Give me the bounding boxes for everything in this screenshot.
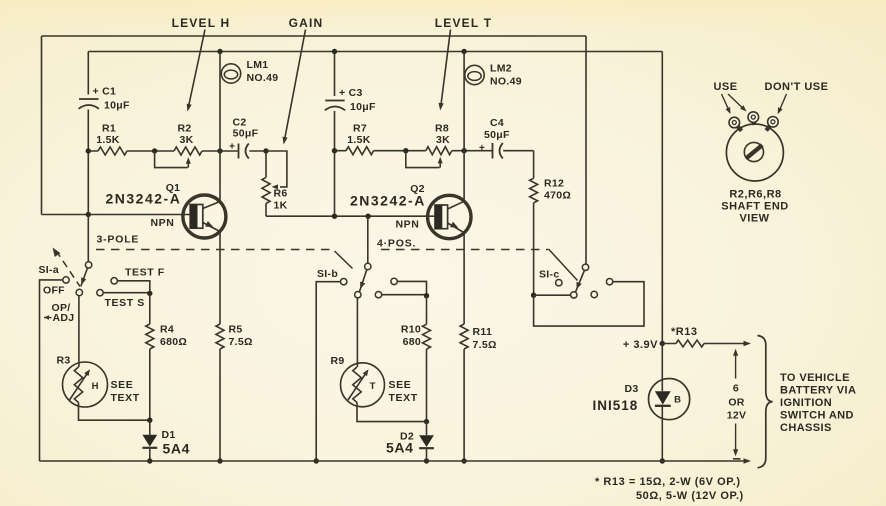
svg-text:10μF: 10μF — [350, 101, 376, 113]
svg-text:680Ω: 680Ω — [160, 336, 187, 348]
svg-text:1.5K: 1.5K — [96, 134, 119, 146]
svg-text:50μF: 50μF — [233, 128, 259, 140]
svg-text:LEVEL H: LEVEL H — [172, 16, 231, 30]
svg-text:LEVEL T: LEVEL T — [435, 16, 493, 30]
svg-text:+ C1: + C1 — [93, 86, 117, 98]
svg-text:2N3242-A: 2N3242-A — [350, 193, 426, 209]
svg-text:TEST S: TEST S — [105, 297, 145, 309]
svg-text:CHASSIS: CHASSIS — [780, 422, 832, 434]
svg-text:50Ω, 5-W (12V OP.): 50Ω, 5-W (12V OP.) — [636, 490, 744, 502]
svg-text:R9: R9 — [331, 355, 345, 367]
svg-text:BATTERY VIA: BATTERY VIA — [780, 385, 856, 397]
svg-text:H: H — [92, 381, 99, 392]
svg-text:USE: USE — [713, 81, 737, 93]
svg-text:R4: R4 — [160, 324, 174, 336]
svg-text:+: + — [479, 143, 485, 154]
svg-text:INI518: INI518 — [593, 398, 639, 413]
svg-text:50μF: 50μF — [484, 129, 510, 141]
svg-text:TEXT: TEXT — [111, 392, 140, 404]
svg-text:D3: D3 — [625, 383, 639, 395]
svg-text:4·POS.: 4·POS. — [377, 238, 416, 250]
svg-text:TO VEHICLE: TO VEHICLE — [780, 372, 850, 384]
svg-text:SEE: SEE — [111, 379, 134, 391]
svg-text:5A4: 5A4 — [163, 441, 190, 457]
svg-text:+ 3.9V: + 3.9V — [623, 339, 658, 351]
svg-text:* R13 = 15Ω, 2-W (6V OP.): * R13 = 15Ω, 2-W (6V OP.) — [595, 476, 741, 488]
svg-text:NPN: NPN — [396, 219, 420, 231]
svg-text:7.5Ω: 7.5Ω — [229, 336, 253, 348]
svg-text:R12: R12 — [544, 178, 564, 190]
svg-text:SI-a: SI-a — [39, 264, 59, 276]
svg-text:DON'T USE: DON'T USE — [765, 81, 829, 93]
svg-text:C4: C4 — [490, 117, 504, 129]
svg-text:3K: 3K — [436, 134, 450, 146]
svg-text:3K: 3K — [179, 134, 193, 146]
svg-text:TEXT: TEXT — [389, 392, 418, 404]
svg-text:10μF: 10μF — [104, 100, 130, 112]
svg-text:R7: R7 — [353, 123, 367, 135]
svg-text:T: T — [370, 381, 376, 392]
svg-text:R5: R5 — [229, 324, 243, 336]
svg-text:680: 680 — [403, 336, 421, 348]
svg-text:2N3242-A: 2N3242-A — [106, 191, 182, 207]
svg-text:NO.49: NO.49 — [247, 72, 279, 84]
svg-text:LM2: LM2 — [490, 63, 512, 75]
svg-text:TEST F: TEST F — [125, 267, 165, 279]
svg-text:R2,R6,R8: R2,R6,R8 — [729, 189, 781, 201]
svg-text:*R13: *R13 — [671, 326, 697, 338]
svg-text:470Ω: 470Ω — [544, 190, 571, 202]
svg-text:R11: R11 — [473, 326, 493, 338]
svg-text:SHAFT END: SHAFT END — [721, 201, 788, 213]
svg-text:3-POLE: 3-POLE — [97, 234, 140, 246]
svg-text:7.5Ω: 7.5Ω — [473, 339, 497, 351]
svg-text:1.5K: 1.5K — [347, 134, 370, 146]
svg-text:+ C3: + C3 — [339, 87, 363, 99]
svg-text:SEE: SEE — [389, 379, 412, 391]
svg-text:D1: D1 — [162, 429, 176, 441]
svg-text:LM1: LM1 — [247, 59, 269, 71]
svg-text:R10: R10 — [401, 324, 421, 336]
svg-text:NPN: NPN — [151, 217, 175, 229]
svg-text:VIEW: VIEW — [739, 213, 769, 225]
svg-text:GAIN: GAIN — [289, 16, 324, 30]
svg-text:SI-b: SI-b — [317, 268, 338, 280]
svg-text:6: 6 — [733, 383, 739, 395]
svg-text:R2: R2 — [177, 123, 191, 135]
svg-text:R6: R6 — [274, 188, 288, 200]
svg-text:NO.49: NO.49 — [490, 76, 522, 88]
svg-text:R3: R3 — [57, 355, 71, 367]
svg-text:OR: OR — [728, 397, 744, 409]
svg-text:IGNITION: IGNITION — [780, 397, 832, 409]
svg-text:SWITCH AND: SWITCH AND — [780, 410, 854, 422]
svg-text:12V: 12V — [727, 410, 747, 422]
svg-text:+: + — [229, 142, 235, 153]
svg-text:R1: R1 — [102, 123, 116, 135]
svg-text:ADJ: ADJ — [53, 312, 75, 324]
svg-text:5A4: 5A4 — [386, 440, 413, 456]
svg-text:SI-c: SI-c — [539, 269, 559, 281]
svg-text:B: B — [674, 395, 681, 406]
svg-text:R8: R8 — [435, 123, 449, 135]
svg-text:OFF: OFF — [43, 285, 65, 297]
svg-text:1K: 1K — [274, 200, 288, 212]
